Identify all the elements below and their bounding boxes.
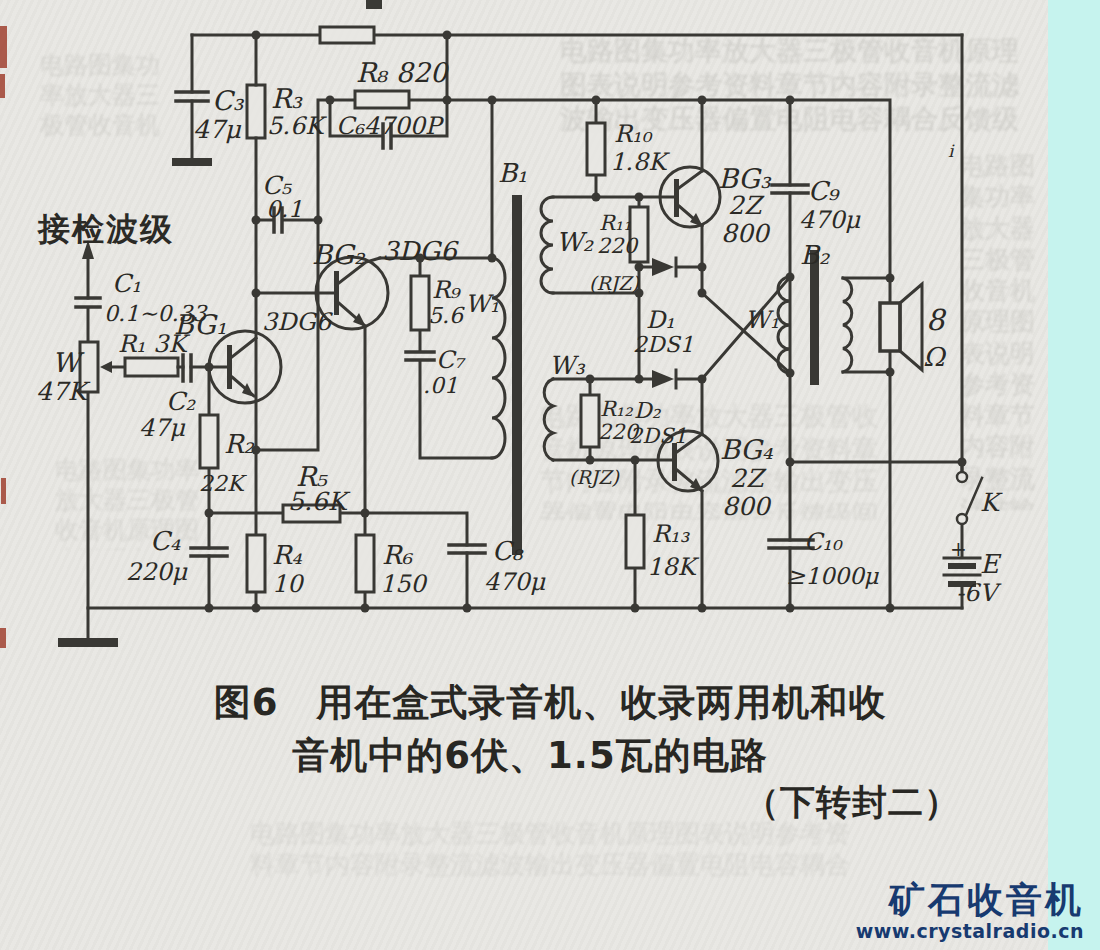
cap-c8: [449, 545, 485, 553]
label-w1b: W₁: [745, 306, 779, 334]
winding-b2-secondary: [843, 278, 852, 372]
label-c7v: .01: [423, 373, 458, 398]
resistor-r9: [411, 276, 429, 330]
label-r11v: 220: [597, 234, 639, 258]
resistor-r2: [200, 415, 218, 468]
label-r3: R₃: [271, 83, 303, 114]
label-d1v: 2DS1: [633, 332, 694, 357]
resistor-r8: [355, 91, 409, 108]
winding-b2-primary: [778, 277, 790, 373]
label-r13v: 18K: [647, 553, 700, 581]
label-r9v: 5.6: [428, 303, 465, 328]
label-r12: R₁₂: [600, 397, 633, 421]
label-bg4: BG₄: [720, 434, 773, 465]
label-r4: R₄: [272, 540, 303, 570]
transformer-b2-core: [810, 250, 819, 385]
winding-b1-primary: [492, 258, 505, 458]
label-b1: B₁: [498, 158, 528, 188]
label-c4v: 220μ: [126, 558, 188, 586]
label-bg1: BG₁: [174, 309, 227, 340]
wiper-arrow-icon: [100, 361, 112, 373]
label-d2: D₂: [634, 398, 662, 423]
label-c5v: 0.1: [266, 196, 303, 222]
speaker-icon: [880, 278, 922, 608]
label-bg3a: 2Z: [728, 191, 765, 220]
label-c6: C₆4700P: [336, 112, 445, 140]
watermark-url: www.crystalradio.cn: [856, 920, 1084, 942]
label-r2v: 22K: [199, 471, 247, 496]
label-r6: R₆: [382, 540, 414, 570]
label-bg2: BG₂: [312, 239, 366, 270]
transformer-b1-core: [512, 195, 522, 555]
label-w3: W₃: [549, 351, 586, 380]
wire-feedback-column: [256, 100, 330, 450]
label-e: E: [980, 549, 1002, 579]
label-input: 接检波级: [37, 210, 174, 248]
cap-c4: [191, 548, 227, 556]
label-bg4b: 800: [722, 492, 772, 521]
label-w1a: W₁: [465, 290, 499, 318]
watermark-title: 矿石收音机: [856, 880, 1084, 920]
resistor-r1: [125, 358, 178, 376]
label-c9: C₉: [808, 176, 840, 206]
label-rjz1: (RJZ): [589, 272, 641, 294]
label-c3: C₃: [212, 85, 245, 116]
resistor-r13: [626, 515, 644, 568]
label-w2: W₂: [556, 227, 594, 257]
label-bg4a: 2Z: [730, 464, 767, 493]
label-ev: -6V: [956, 579, 1002, 607]
label-r3v: 5.6K: [267, 112, 327, 140]
ground-bar-icon: [172, 158, 212, 166]
label-c8: C₈: [492, 536, 524, 566]
cap-c1: [76, 298, 100, 307]
resistor-r10: [587, 123, 605, 175]
label-r13: R₁₃: [652, 520, 691, 548]
resistor-r7: [320, 27, 374, 43]
label-c4: C₄: [150, 526, 181, 556]
winding-b1-w2: [541, 197, 553, 293]
label-r4v: 10: [272, 570, 304, 598]
cap-c3: [176, 92, 208, 101]
resistor-r3: [247, 85, 265, 138]
cap-c7: [406, 352, 434, 360]
label-r2: R₂: [224, 429, 255, 459]
label-c2: C₂: [166, 387, 196, 416]
label-r5v: 5.6K: [288, 487, 351, 516]
label-d1: D₁: [646, 306, 675, 334]
label-d2v: 2DS1: [629, 424, 687, 448]
label-wv: 47K: [36, 377, 91, 406]
label-r10: R₁₀: [614, 120, 653, 148]
ground-bar-icon: [58, 638, 118, 647]
label-k: K: [980, 488, 1003, 517]
label-c9v: 470μ: [799, 206, 861, 234]
label-imark: i: [948, 141, 955, 161]
label-plus: +: [950, 537, 967, 561]
figure-caption-line1: 图6 用在盒式录音机、收录两用机和收: [205, 678, 895, 728]
label-r10v: 1.8K: [610, 148, 670, 176]
label-c7: C₇: [436, 346, 466, 374]
resistor-r4: [247, 535, 265, 592]
label-c1: C₁: [112, 269, 141, 298]
label-rjz2: (RJZ): [569, 466, 621, 488]
label-b2: B₂: [800, 240, 830, 270]
winding-b1-w3: [544, 379, 553, 460]
cap-c9: [772, 185, 808, 193]
label-c10v: ≥1000μ: [786, 563, 880, 589]
label-bg1t: 3DG6: [262, 308, 334, 336]
label-c3v: 47μ: [193, 115, 242, 144]
label-r8: R₈ 820: [356, 57, 450, 88]
label-bg3: BG₃: [718, 163, 772, 194]
label-r6v: 150: [380, 570, 428, 598]
resistor-r6: [356, 535, 374, 592]
label-c10: C₁₀: [804, 528, 843, 556]
watermark: 矿石收音机 www.crystalradio.cn: [856, 880, 1084, 942]
label-spk8: 8: [926, 303, 947, 337]
resistor-r12: [581, 395, 599, 447]
diode-d2: [639, 370, 702, 388]
label-c2v: 47μ: [139, 414, 186, 442]
figure-caption-line2: 音机中的6伏、1.5瓦的电路: [245, 731, 815, 781]
figure-caption-continuation: （下转封二）: [660, 779, 960, 826]
label-spkohm: Ω: [923, 342, 947, 372]
label-r9: R₉: [432, 276, 461, 304]
label-c8v: 470μ: [484, 568, 546, 596]
label-bg2t: 3DG6: [382, 236, 459, 266]
label-bg3b: 800: [721, 219, 771, 248]
scanned-page: 电路图集功率放大器三极管收音机原理图表说明参考资料章节内容附录整流滤波输出变压器…: [0, 0, 1100, 950]
label-r11: R₁₁: [599, 211, 632, 235]
